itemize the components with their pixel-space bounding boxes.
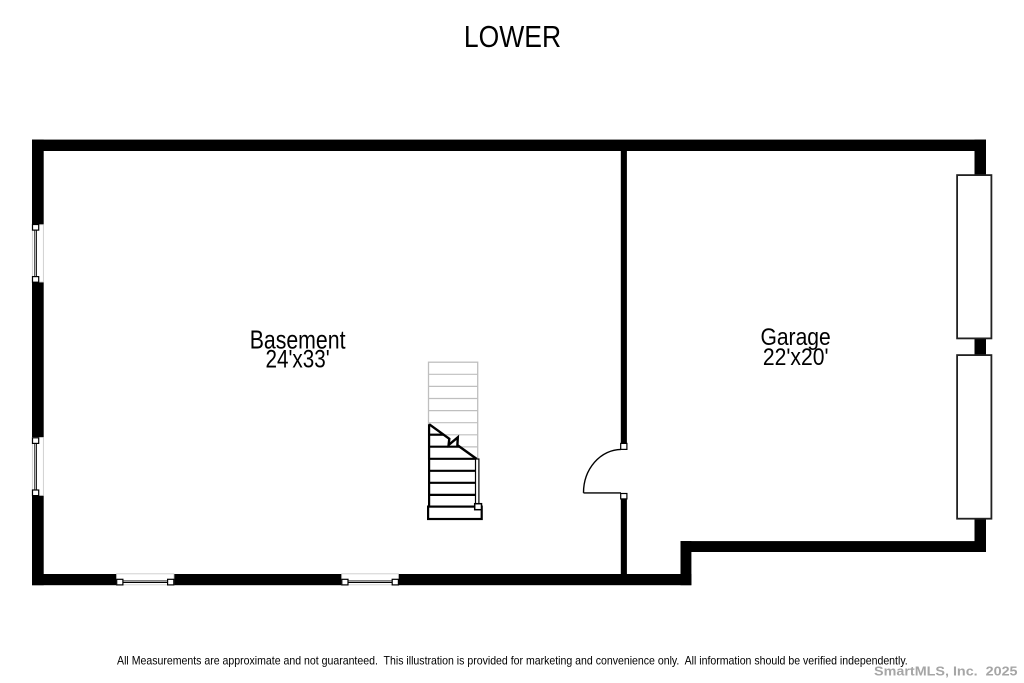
svg-text:LOWER: LOWER xyxy=(464,19,561,54)
svg-text:24'x33': 24'x33' xyxy=(266,346,330,374)
svg-text:All Measurements are approxima: All Measurements are approximate and not… xyxy=(117,654,908,667)
svg-text:22'x20': 22'x20' xyxy=(763,344,829,371)
svg-text:SmartMLS, Inc. 2025: SmartMLS, Inc. 2025 xyxy=(874,664,1018,678)
